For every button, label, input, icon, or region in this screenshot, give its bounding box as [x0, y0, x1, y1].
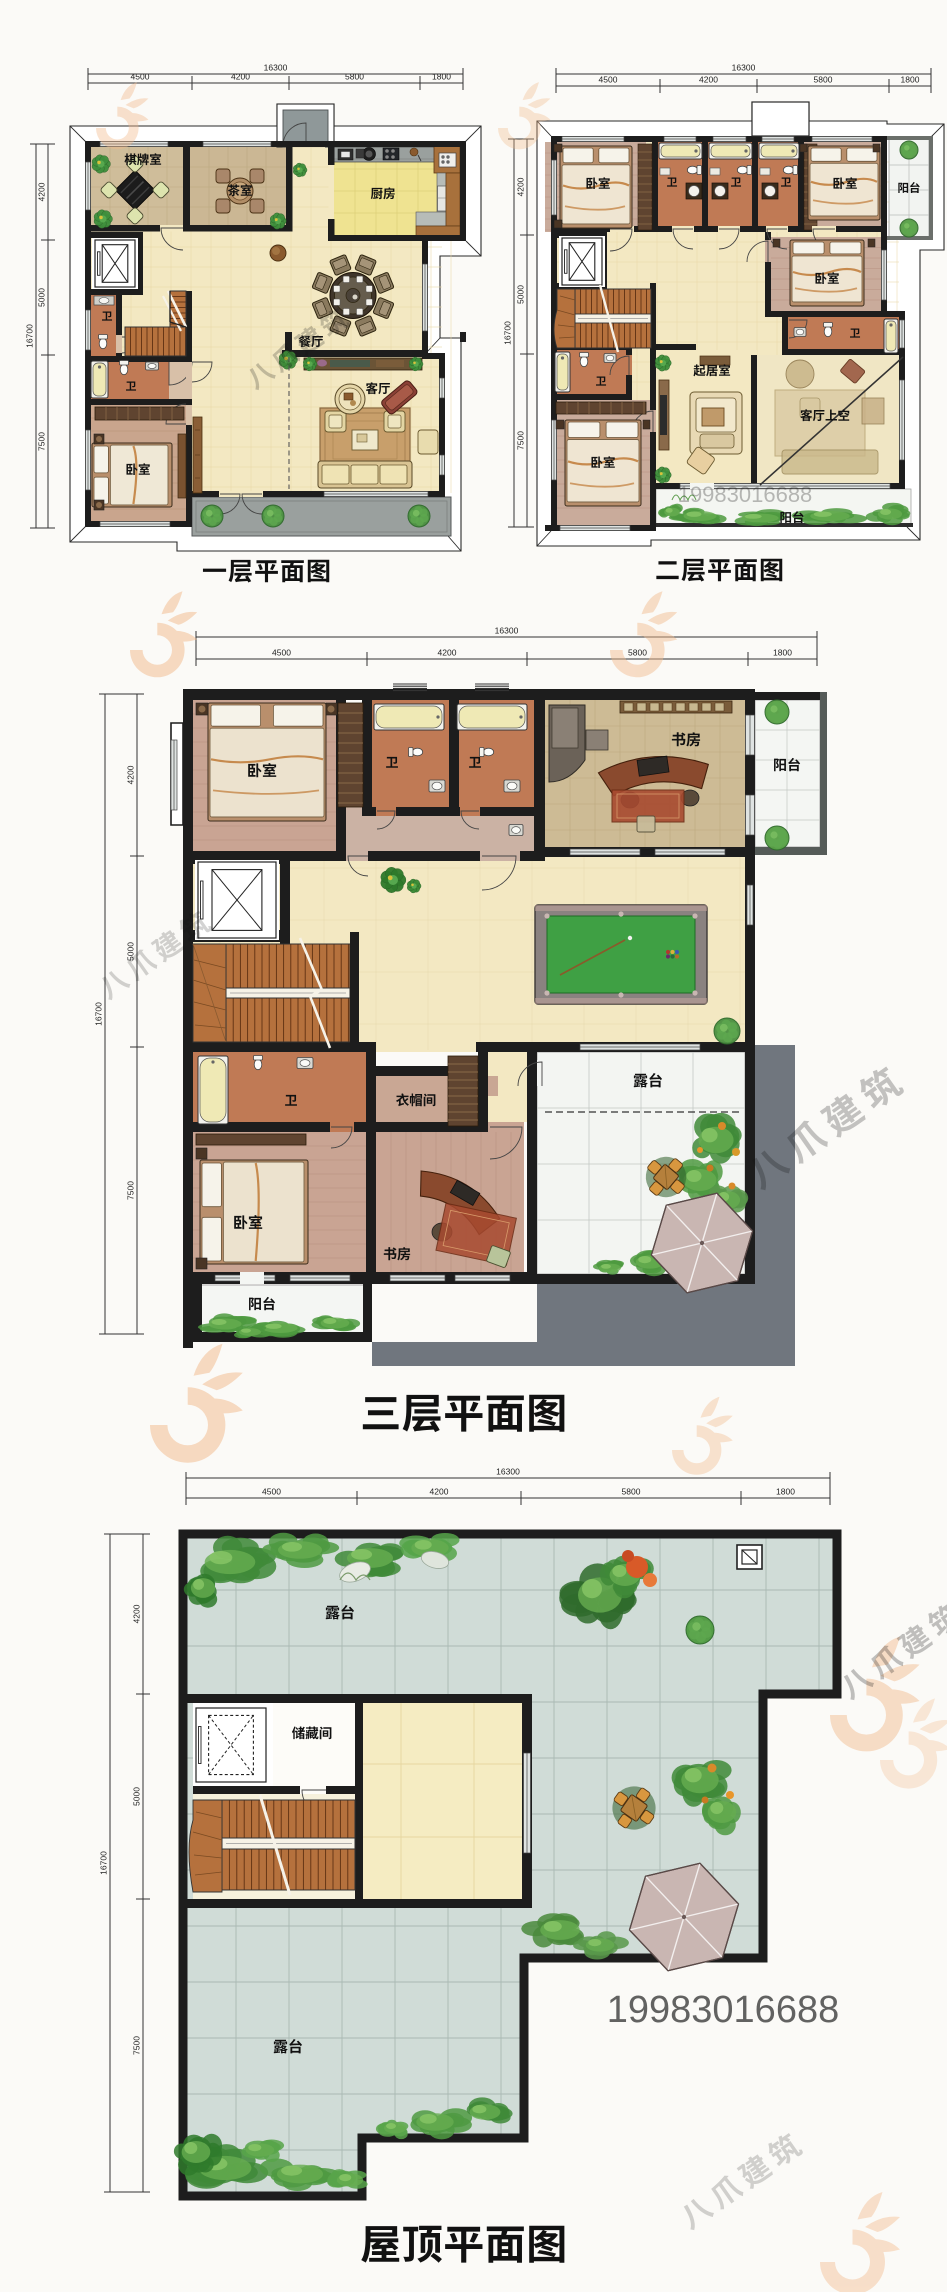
svg-text:客厅上空: 客厅上空 — [800, 405, 850, 424]
svg-text:卧室: 卧室 — [233, 1212, 263, 1233]
svg-text:1800: 1800 — [776, 1487, 795, 1497]
svg-text:卧室: 卧室 — [585, 173, 610, 192]
svg-text:卫: 卫 — [850, 325, 861, 341]
svg-text:书房: 书房 — [383, 1244, 411, 1264]
svg-text:16700: 16700 — [94, 1002, 104, 1026]
svg-text:19983016688: 19983016688 — [607, 1989, 839, 2031]
svg-text:厨房: 厨房 — [370, 183, 395, 202]
svg-text:1800: 1800 — [901, 75, 920, 85]
svg-text:1800: 1800 — [432, 72, 451, 82]
svg-text:4200: 4200 — [231, 72, 250, 82]
svg-text:4200: 4200 — [438, 648, 457, 658]
svg-text:4200: 4200 — [132, 1604, 142, 1623]
svg-text:5000: 5000 — [37, 288, 47, 307]
svg-text:4200: 4200 — [430, 1487, 449, 1497]
svg-text:16700: 16700 — [25, 324, 35, 348]
svg-text:露台: 露台 — [273, 2036, 303, 2057]
svg-text:卫: 卫 — [781, 174, 792, 190]
svg-text:4200: 4200 — [516, 177, 526, 196]
svg-text:卫: 卫 — [667, 174, 678, 190]
svg-text:阳台: 阳台 — [898, 180, 921, 196]
svg-text:卫: 卫 — [596, 373, 607, 389]
svg-text:一层平面图: 一层平面图 — [202, 552, 332, 588]
svg-text:5800: 5800 — [345, 72, 364, 82]
svg-text:卧室: 卧室 — [832, 173, 857, 192]
svg-text:16300: 16300 — [264, 63, 288, 73]
svg-text:卧室: 卧室 — [814, 268, 839, 287]
svg-text:4500: 4500 — [599, 75, 618, 85]
svg-text:卧室: 卧室 — [590, 452, 615, 471]
svg-text:4500: 4500 — [262, 1487, 281, 1497]
svg-text:阳台: 阳台 — [248, 1294, 276, 1314]
svg-text:阳台: 阳台 — [773, 755, 801, 775]
svg-text:起居室: 起居室 — [693, 360, 731, 379]
svg-text:储藏间: 储藏间 — [292, 1722, 333, 1742]
svg-text:卫: 卫 — [126, 378, 137, 394]
svg-text:卫: 卫 — [102, 308, 113, 324]
svg-text:卫: 卫 — [468, 752, 481, 771]
svg-text:16300: 16300 — [496, 1467, 520, 1477]
svg-text:7500: 7500 — [37, 432, 47, 451]
svg-text:19983016688: 19983016688 — [678, 482, 813, 507]
svg-text:16300: 16300 — [732, 63, 756, 73]
svg-text:7500: 7500 — [126, 1181, 136, 1200]
svg-text:5000: 5000 — [516, 285, 526, 304]
svg-text:4200: 4200 — [37, 182, 47, 201]
svg-text:露台: 露台 — [633, 1070, 663, 1091]
svg-text:二层平面图: 二层平面图 — [655, 551, 785, 587]
svg-text:16700: 16700 — [503, 321, 513, 345]
svg-text:客厅: 客厅 — [365, 378, 390, 397]
svg-text:卧室: 卧室 — [125, 459, 150, 478]
svg-text:棋牌室: 棋牌室 — [124, 149, 162, 168]
svg-text:5800: 5800 — [628, 648, 647, 658]
svg-text:5000: 5000 — [132, 1787, 142, 1806]
svg-text:茶室: 茶室 — [227, 180, 252, 199]
svg-text:5800: 5800 — [814, 75, 833, 85]
svg-text:7500: 7500 — [132, 2036, 142, 2055]
svg-text:1800: 1800 — [773, 648, 792, 658]
svg-text:衣帽间: 衣帽间 — [396, 1089, 437, 1109]
svg-text:八爪建筑: 八爪建筑 — [670, 2119, 813, 2238]
svg-text:卫: 卫 — [385, 752, 398, 771]
svg-text:4500: 4500 — [131, 72, 150, 82]
svg-text:4200: 4200 — [126, 765, 136, 784]
svg-text:16300: 16300 — [495, 626, 519, 636]
svg-text:卫: 卫 — [731, 174, 742, 190]
svg-text:卫: 卫 — [284, 1090, 297, 1109]
svg-text:书房: 书房 — [671, 729, 701, 750]
svg-text:三层平面图: 三层平面图 — [360, 1380, 568, 1440]
svg-text:5800: 5800 — [622, 1487, 641, 1497]
svg-text:16700: 16700 — [99, 1851, 109, 1875]
svg-text:4200: 4200 — [699, 75, 718, 85]
svg-text:7500: 7500 — [516, 431, 526, 450]
svg-text:4500: 4500 — [272, 648, 291, 658]
svg-text:阳台: 阳台 — [779, 507, 804, 526]
svg-text:卧室: 卧室 — [247, 760, 277, 781]
svg-text:屋顶平面图: 屋顶平面图 — [360, 2211, 568, 2271]
svg-text:露台: 露台 — [325, 1602, 355, 1623]
